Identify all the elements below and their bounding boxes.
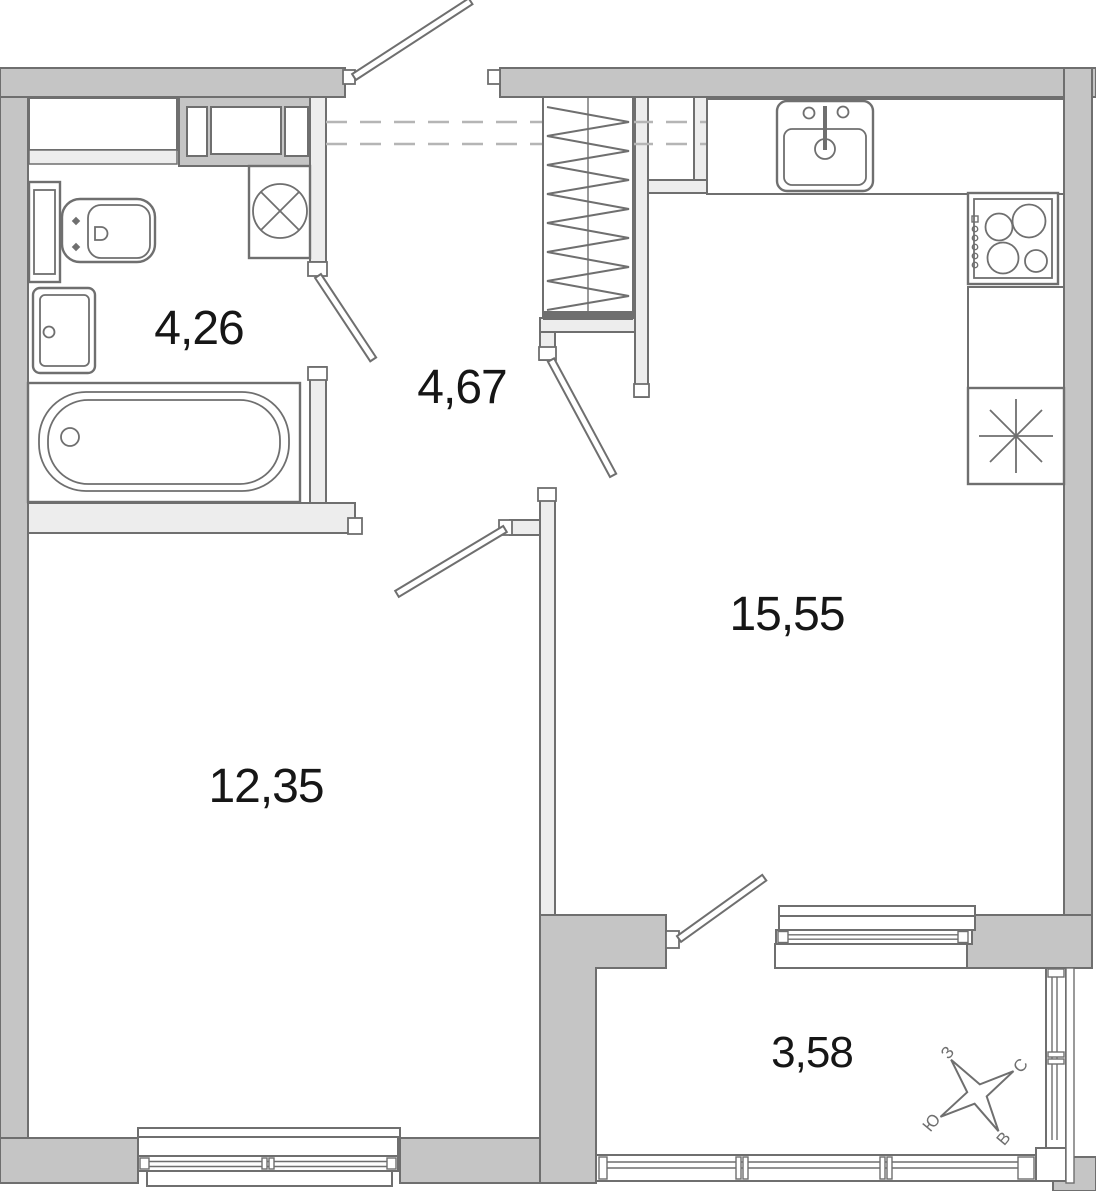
room-label-room: 12,35 [208,760,323,813]
compass-star [941,1060,1014,1132]
kitchen-balcony-window [775,906,975,968]
bathroom-door-jamb [308,262,327,276]
wardrobe-bottom-bar [543,311,633,320]
room-window-sill [147,1171,392,1186]
mezzanine-dashed-lines [326,122,708,144]
built-in-cabinet-block [179,97,310,166]
room-label-balcony: 3,58 [771,1028,853,1077]
wall-stub-room-door [510,520,543,535]
kitchen-counter-side [968,287,1064,388]
room-label-hallway: 4,67 [417,361,506,414]
wall-bathroom-south [28,503,355,533]
wall-outer-top-left [0,68,345,97]
wall-duct-west [635,97,648,397]
compass-south-label: Ю [919,1110,945,1135]
wall-kitchen-south-right [967,915,1092,968]
wardrobe [543,97,633,320]
wall-bathroom-east-upper [310,97,326,262]
room-door-leaf [395,526,507,597]
kitchen-fixtures [707,99,1064,484]
entrance-door-leaf [352,0,472,80]
bathroom-cabinet [29,98,177,164]
room-label-bathroom: 4,26 [154,302,243,355]
wall-bathroom-east-lower [310,367,326,518]
duct-wall-cap [634,384,649,397]
bathroom-door-leaf [315,274,376,361]
floor-plan: З С Ю В 4,26 4,67 15,55 12,35 3,58 [0,0,1096,1191]
balcony-door-jamb [666,931,679,948]
kitchen-door-leaf [548,358,616,477]
wall-outer-bottom-mid [400,1138,540,1183]
kitchen-window-sill [775,944,967,968]
room-door-jamb-left [348,518,362,534]
refrigerator [968,388,1064,484]
wall-outer-left [0,68,28,1183]
kitchen-sink [777,101,873,191]
wall-wardrobe-bottom-connector [540,318,648,332]
balcony-glazing-corner [1036,1148,1066,1181]
wall-outer-top-right [500,68,1096,97]
toilet-bowl [62,199,155,262]
wall-balcony-left [540,915,666,1183]
entrance-jamb-right [488,70,500,84]
kitchen-counter-top [707,99,1064,194]
wall-outer-bottom-left [0,1138,138,1183]
bathroom-sink [33,288,95,373]
balcony-parapet-edge [1066,968,1074,1183]
compass-west-label: З [937,1043,958,1063]
wall-outer-right [1064,68,1092,968]
bathroom-wall-cap [308,367,327,380]
balcony-glazing-right [1046,968,1066,1148]
wall-kitchen-west [540,500,555,915]
bathroom-fixtures [28,97,310,502]
room-window [138,1128,400,1186]
kitchen-wall-cap [538,488,556,501]
balcony-door-leaf [677,875,766,942]
faucet-spout [823,106,827,150]
toilet [29,182,155,282]
stove [968,193,1058,284]
compass-east-label: В [993,1128,1015,1149]
compass-rose: З С Ю В [919,1043,1032,1149]
washing-machine [249,166,310,258]
bathtub [28,383,300,502]
room-label-kitchen: 15,55 [729,588,844,641]
wall-duct-bottom [648,180,707,193]
